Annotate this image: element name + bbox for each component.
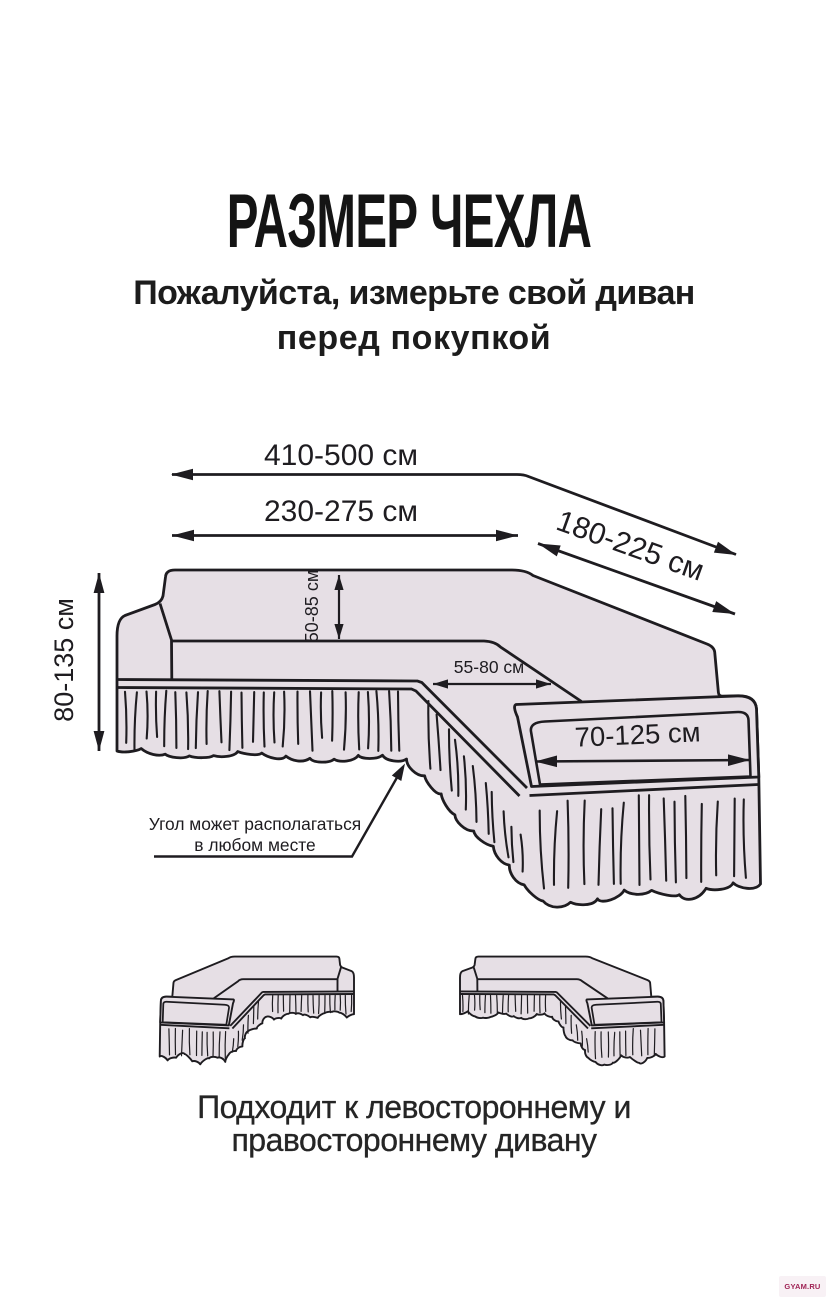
svg-text:50-85 см: 50-85 см [302,570,322,642]
svg-text:230-275 см: 230-275 см [264,495,418,528]
svg-text:410-500 см: 410-500 см [264,439,418,472]
svg-text:Угол может располагаться: Угол может располагаться [149,814,361,834]
svg-text:80-135 см: 80-135 см [49,598,79,722]
svg-text:55-80 см: 55-80 см [454,657,524,677]
svg-text:70-125 см: 70-125 см [574,716,701,752]
svg-text:в любом месте: в любом месте [194,835,315,855]
